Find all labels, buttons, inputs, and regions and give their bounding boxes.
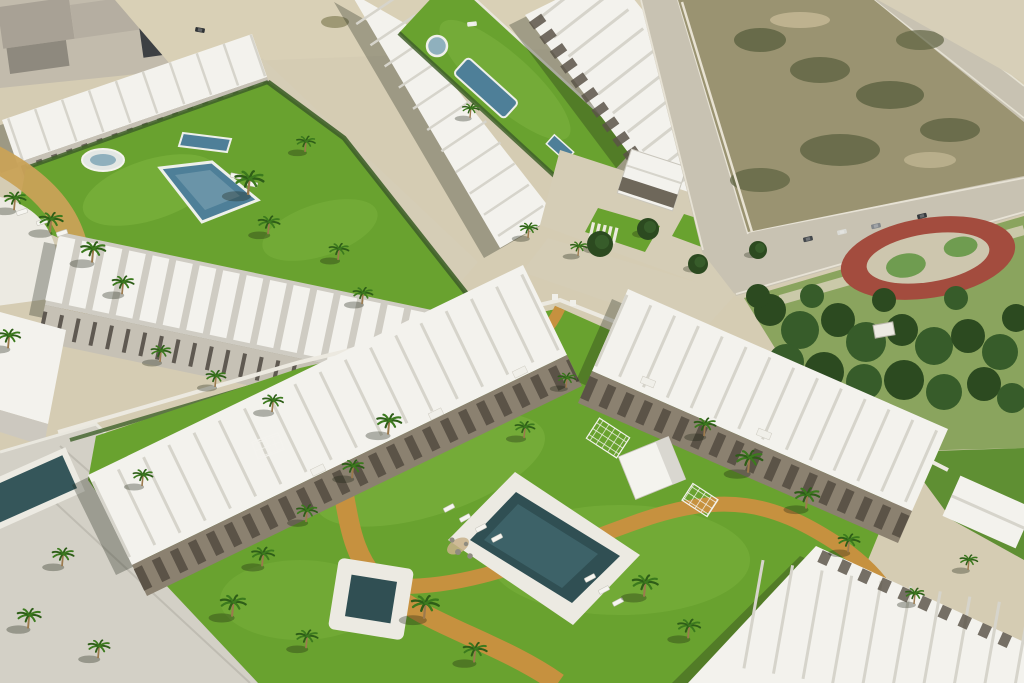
round-pool [427, 36, 447, 56]
park-hut [873, 322, 895, 338]
gate-post [570, 300, 576, 306]
aerial-render-stage [0, 0, 1024, 683]
gate-post [552, 294, 558, 300]
jacuzzi [328, 557, 414, 640]
aerial-render [0, 0, 1024, 683]
